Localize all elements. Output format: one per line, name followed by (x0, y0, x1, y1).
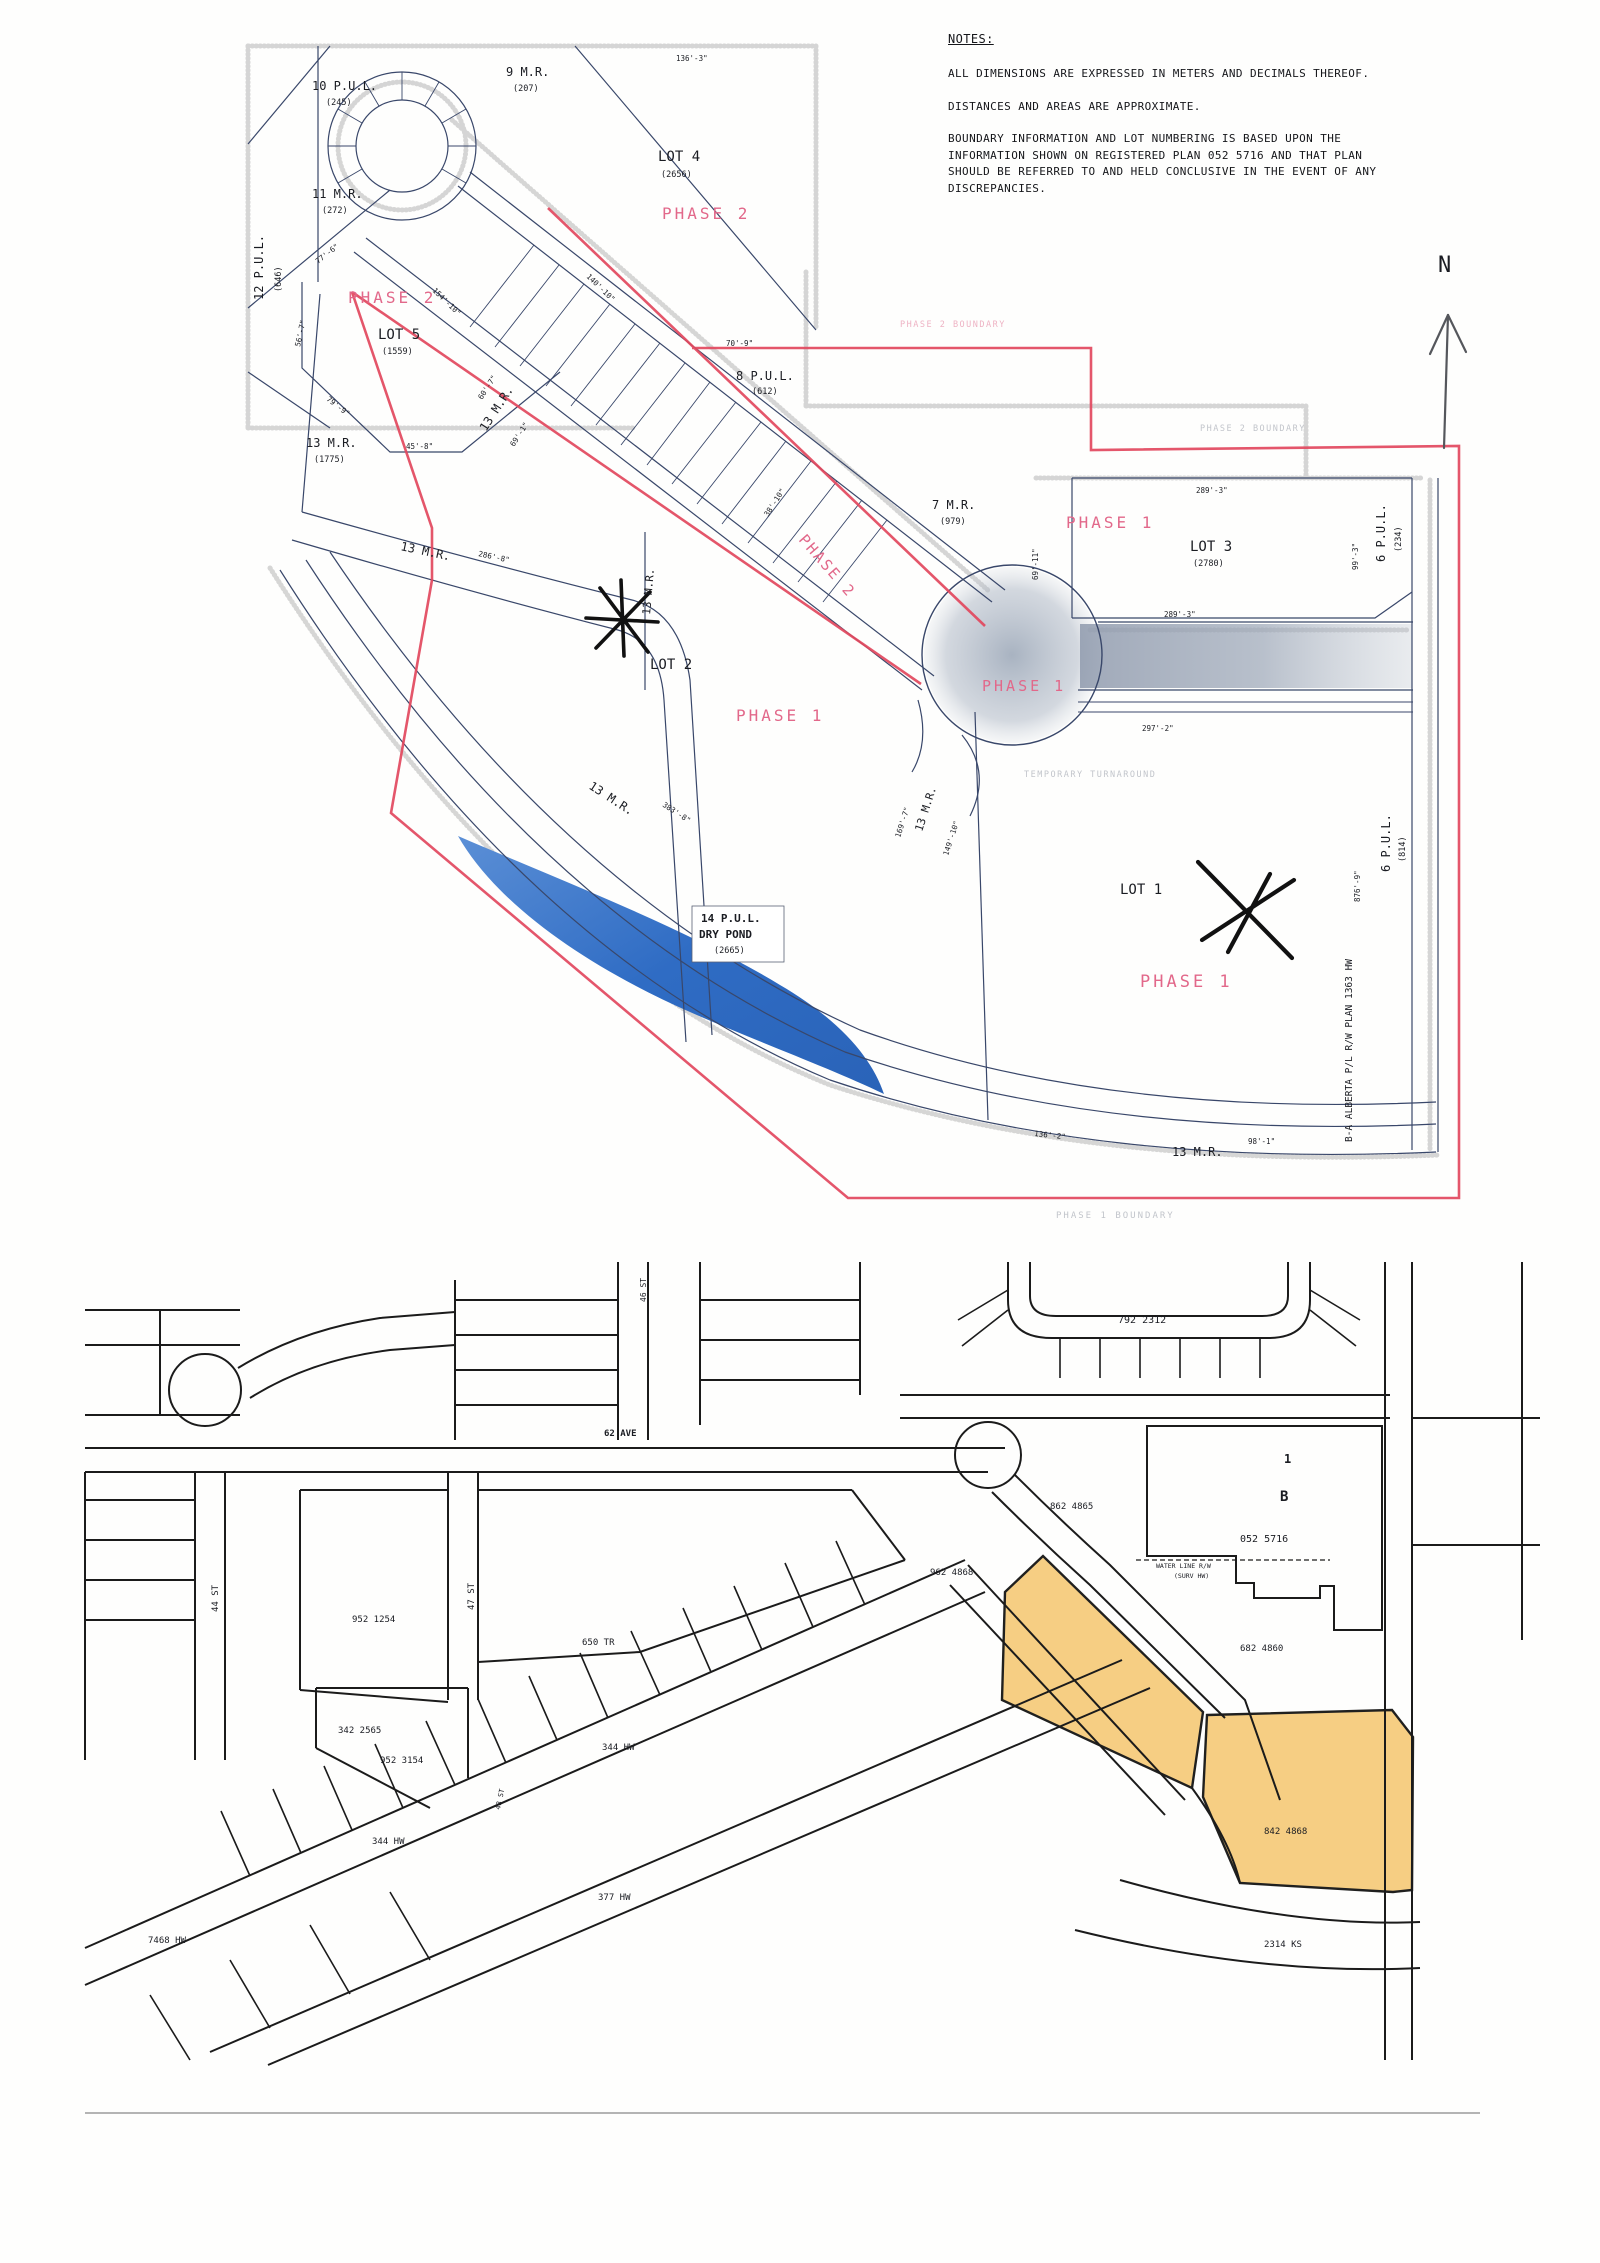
pul-6-ne-label: 6 P.U.L. (1374, 504, 1388, 562)
dim-136-2: 136'-2" (1034, 1129, 1066, 1141)
st-44-label: 44 ST (211, 1584, 221, 1612)
notes-block: NOTES: ALL DIMENSIONS ARE EXPRESSED IN M… (948, 30, 1418, 197)
lot-4-label: LOT 4 (658, 149, 700, 165)
plan-342-2565-label: 342 2565 (338, 1726, 381, 1736)
mr-13-junction-label: 13 M.R. (912, 785, 939, 833)
water-line-row-label-2: (SURV HW) (1174, 1572, 1209, 1580)
notes-line: INFORMATION SHOWN ON REGISTERED PLAN 052… (948, 148, 1418, 165)
pul-12-area: (646) (274, 266, 284, 292)
dim-289-3-lot3: 289'-3" (1196, 486, 1228, 495)
mr-11-area: (272) (322, 206, 348, 216)
phase-1-lot3-label: PHASE 1 (1066, 513, 1154, 532)
plan-7468-hw-label: 7468 HW (148, 1936, 187, 1946)
notes-line: SHOULD BE REFERRED TO AND HELD CONCLUSIV… (948, 164, 1418, 181)
lot-5-area: (1559) (382, 347, 413, 357)
lot-1-label: LOT 1 (1120, 882, 1162, 898)
north-label: N (1438, 253, 1451, 278)
notes-line: BOUNDARY INFORMATION AND LOT NUMBERING I… (948, 131, 1418, 148)
pul-6-se-area: (814) (1398, 836, 1408, 862)
phase-2-lot5-label: PHASE 2 (348, 288, 436, 307)
mr-9-label: 9 M.R. (506, 65, 549, 79)
dim-45-8: 45'-8" (406, 442, 433, 451)
phase-1-boundary-label: PHASE 1 BOUNDARY (1056, 1211, 1175, 1221)
lot-3-label: LOT 3 (1190, 539, 1232, 555)
dim-286-8: 286'-8" (478, 549, 511, 564)
street-grid-lines (85, 1262, 1540, 2065)
pul-6-ne-area: (234) (1394, 526, 1404, 552)
plan-842-4868-label: 842 4868 (1264, 1827, 1307, 1837)
dim-99-3: 99'-3" (1351, 543, 1360, 570)
dim-98-1: 98'-1" (1248, 1137, 1275, 1146)
mr-11-label: 11 M.R. (312, 187, 363, 201)
mr-9-area: (207) (513, 84, 539, 94)
plat-drawing-canvas: N (0, 0, 1600, 2263)
water-line-row-label-1: WATER LINE R/W (1156, 1562, 1211, 1570)
phase-boundary-lines (352, 208, 1459, 1198)
pul-12-label: 12 P.U.L. (252, 235, 266, 300)
mr-13-mid-label: 13 M.R. (399, 539, 451, 563)
lot-3-area: (2780) (1193, 559, 1224, 569)
plan-052-5716-label: 052 5716 (1240, 1534, 1288, 1545)
north-arrow-icon (1430, 315, 1466, 448)
dim-79-9: 79'-9" (325, 394, 352, 418)
plan-862-4865-label: 862 4865 (1050, 1502, 1093, 1512)
dim-69-11: 69'-11" (1031, 548, 1040, 580)
mr-13-south-label: 13 M.R. (1172, 1145, 1223, 1159)
pul-8-label: 8 P.U.L. (736, 369, 794, 383)
dim-69-1: 69'-1" (508, 420, 530, 448)
turnaround-label: TEMPORARY TURNAROUND (1024, 770, 1156, 780)
plan-650-tr-label: 650 TR (582, 1638, 615, 1648)
plan-344-hw-west-label: 344 HW (372, 1837, 405, 1847)
pipeline-row-label: B-A ALBERTA P/L R/W PLAN 1363 HW (1344, 959, 1355, 1142)
st-48-label: 48 ST (494, 1787, 506, 1810)
block-b-label: B (1280, 1489, 1288, 1505)
mr-13-west-area: (1775) (314, 455, 345, 465)
dim-149-10: 149'-10" (941, 819, 961, 856)
dim-289-3-road: 289'-3" (1164, 610, 1196, 619)
st-46-label: 46 ST (639, 1278, 648, 1302)
dim-297-2: 297'-2" (1142, 724, 1174, 733)
lot-5-label: LOT 5 (378, 327, 420, 343)
pul-8-area: (612) (752, 387, 778, 397)
notes-line: DISTANCES AND AREAS ARE APPROXIMATE. (948, 99, 1418, 116)
plan-952-3154-label: 952 3154 (380, 1756, 423, 1766)
ave-62-label: 62 AVE (604, 1429, 637, 1439)
mr-13-west-label: 13 M.R. (306, 436, 357, 450)
notes-title: NOTES: (948, 30, 1418, 48)
dim-169-7: 169'-7" (893, 806, 911, 839)
plan-792-2312-label: 792 2312 (1118, 1315, 1166, 1326)
phase-2-road-label: PHASE 2 (795, 531, 859, 601)
plan-962-4868-label: 962 4868 (930, 1568, 973, 1578)
pul-10-area: (245) (326, 98, 352, 108)
phase-2-boundary-north-label: PHASE 2 BOUNDARY (900, 320, 1006, 330)
block-1-label: 1 (1284, 1452, 1291, 1466)
phase-1-road-label: PHASE 1 (982, 677, 1066, 695)
mr-7-area: (979) (940, 517, 966, 527)
bottom-map-labels: 792 2312862 4865962 48681B052 5716WATER … (148, 1278, 1307, 1950)
scanned-subdivision-plan-page: { "notes": { "title": "NOTES:", "lines":… (0, 0, 1600, 2263)
plan-682-4860-label: 682 4860 (1240, 1644, 1283, 1654)
pul-6-se-label: 6 P.U.L. (1379, 814, 1393, 872)
pul-10-label: 10 P.U.L. (312, 79, 377, 93)
dim-56-7: 56'-7" (293, 319, 307, 347)
plan-377-hw-label: 377 HW (598, 1893, 631, 1903)
lot-2-label: LOT 2 (650, 657, 692, 673)
lot-4-area: (2656) (661, 170, 692, 180)
dry-pond-label: DRY POND (699, 928, 752, 941)
dim-136-3: 136'-3" (676, 54, 708, 63)
road-fill (1080, 624, 1412, 688)
dim-383-8: 383'-8" (661, 800, 692, 825)
grey-speckle-boundaries (248, 46, 1438, 1157)
dim-38-10: 38'-10" (762, 487, 787, 518)
dim-876-9: 876'-9" (1353, 870, 1362, 902)
phase-2-lot4-label: PHASE 2 (662, 204, 750, 223)
pul-14-area: (2665) (714, 946, 745, 956)
dry-pond-shape (458, 836, 884, 1094)
mr-13-low-label: 13 M.R. (586, 779, 636, 818)
plan-344-hw-east-label: 344 HW (602, 1743, 635, 1753)
dim-70-9: 70'-9" (726, 339, 753, 348)
notes-line: ALL DIMENSIONS ARE EXPRESSED IN METERS A… (948, 66, 1418, 83)
st-47-label: 47 ST (467, 1582, 477, 1610)
bottom-map-geometry (85, 1262, 1540, 2113)
phase-2-boundary-east-label: PHASE 2 BOUNDARY (1200, 424, 1306, 434)
phase-1-lot1-label: PHASE 1 (1140, 972, 1233, 992)
phase-1-lot2-label: PHASE 1 (736, 706, 824, 725)
top-map-geometry: N (248, 46, 1466, 1198)
plan-952-1254-label: 952 1254 (352, 1615, 395, 1625)
pul-14-label: 14 P.U.L. (701, 912, 761, 925)
plan-2314-ks-label: 2314 KS (1264, 1940, 1302, 1950)
plat-lines (248, 46, 1438, 1154)
notes-line: DISCREPANCIES. (948, 181, 1418, 198)
mr-7-label: 7 M.R. (932, 498, 975, 512)
mr-13-vert-label: 13 M.R. (640, 568, 657, 615)
